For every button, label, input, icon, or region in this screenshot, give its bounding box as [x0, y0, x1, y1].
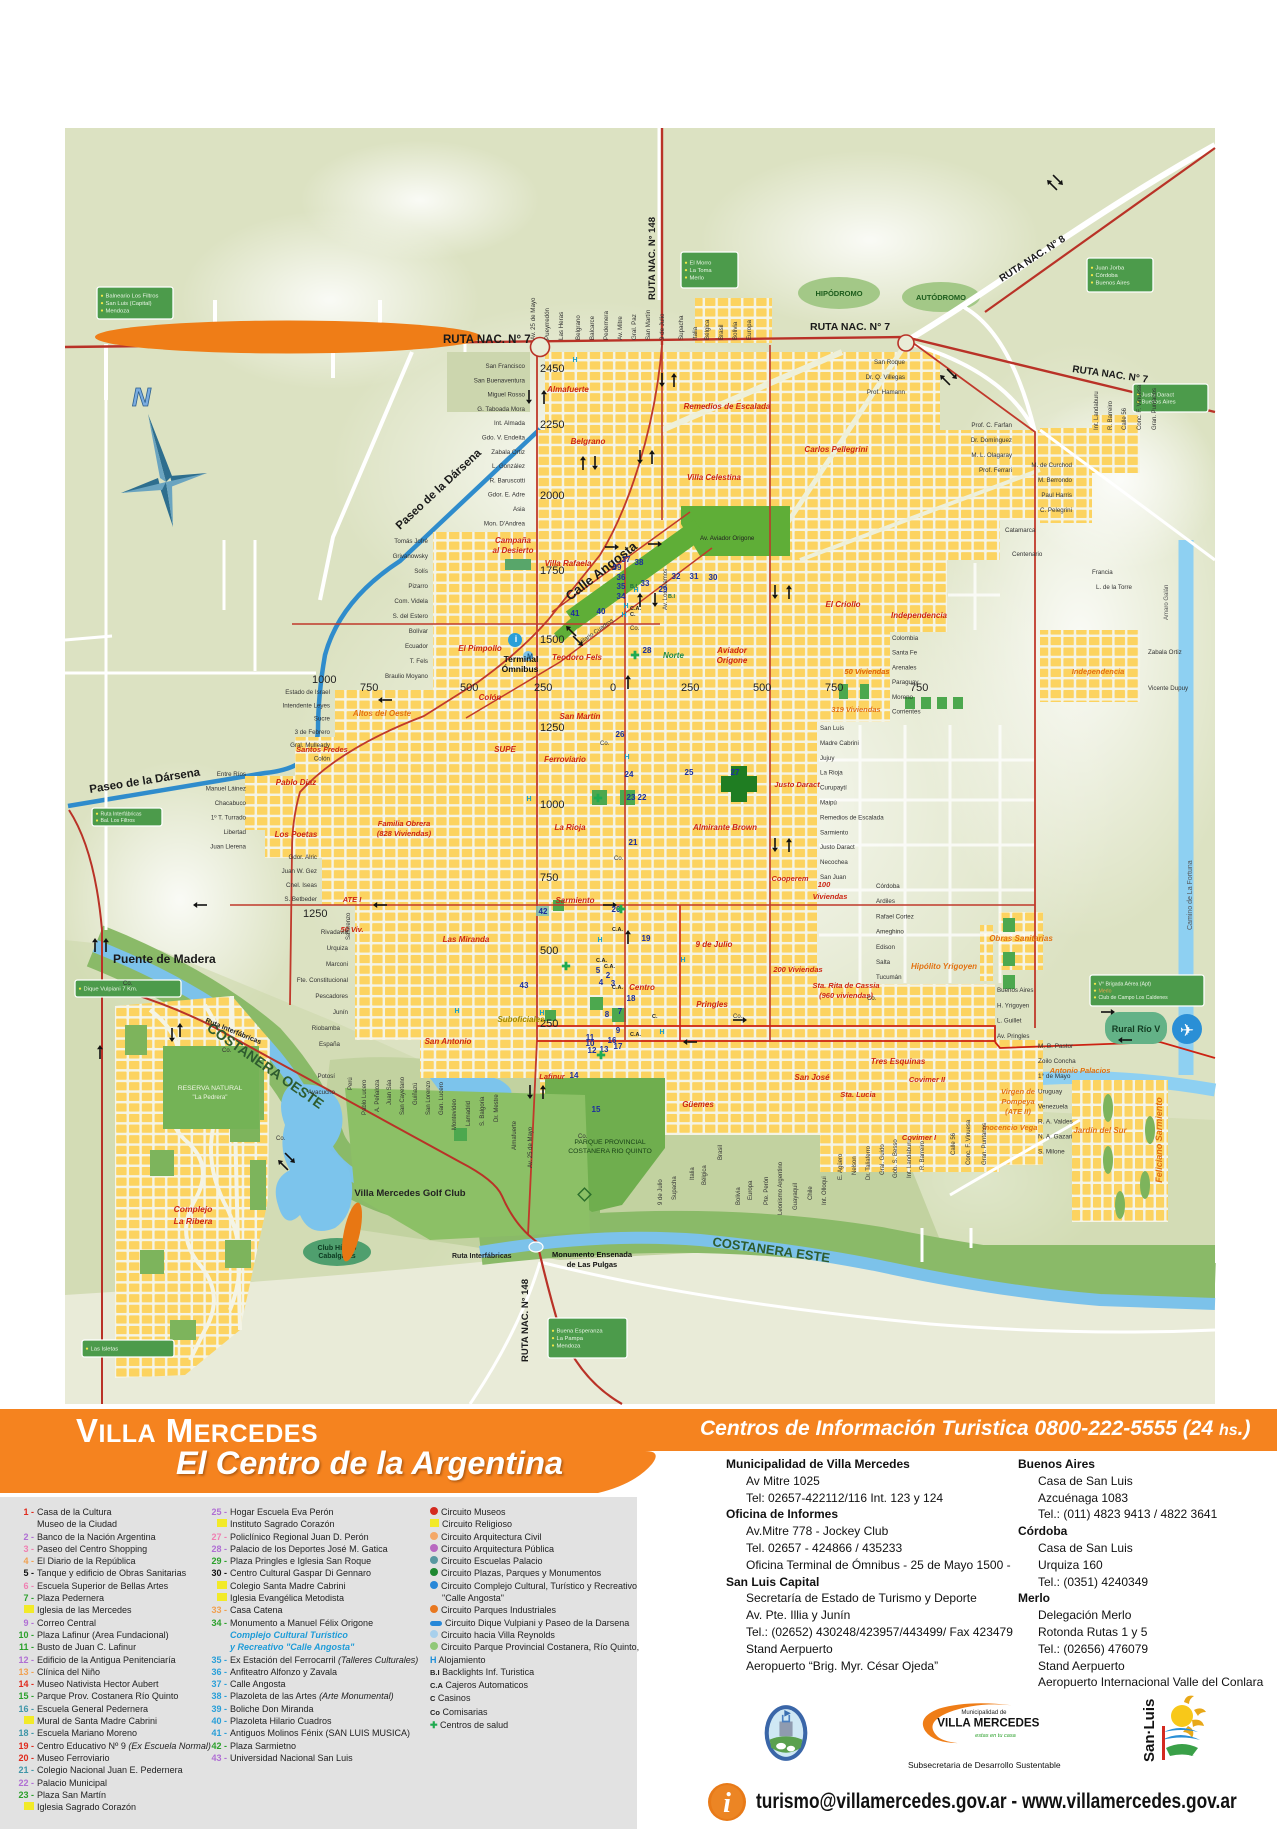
svg-text:Entre Ríos: Entre Ríos: [217, 771, 246, 778]
svg-text:N. A. Gazari: N. A. Gazari: [1038, 1134, 1072, 1141]
svg-text:Puente de Madera: Puente de Madera: [113, 952, 216, 966]
svg-text:Nelson: Nelson: [852, 1156, 858, 1175]
svg-text:San Buenaventura: San Buenaventura: [474, 377, 526, 384]
svg-text:Brasil: Brasil: [718, 1145, 724, 1160]
svg-text:Madre Cabrini: Madre Cabrini: [820, 740, 859, 747]
svg-text:750: 750: [360, 682, 378, 694]
svg-text:Dr. Domínguez: Dr. Domínguez: [971, 437, 1012, 444]
svg-text:Las Isletas: Las Isletas: [91, 1347, 119, 1353]
svg-text:Los Poetas: Los Poetas: [275, 830, 318, 839]
svg-text:Chacabuco: Chacabuco: [215, 800, 247, 807]
svg-text:Campaña: Campaña: [495, 536, 532, 545]
svg-text:Cnel. Iseas: Cnel. Iseas: [286, 882, 317, 889]
svg-text:Supacha: Supacha: [672, 1176, 678, 1200]
svg-text:Ameghino: Ameghino: [876, 929, 904, 936]
svg-text:Manuel Láinez: Manuel Láinez: [206, 786, 246, 793]
svg-text:Aviador: Aviador: [716, 646, 748, 655]
svg-text:Saforenzo: Saforenzo: [346, 912, 352, 940]
svg-text:4: 4: [599, 978, 604, 987]
svg-text:Lafinur: Lafinur: [539, 1072, 565, 1081]
svg-text:26: 26: [616, 730, 625, 739]
svg-text:Mendoza: Mendoza: [557, 1343, 582, 1349]
svg-text:Centenario: Centenario: [1012, 551, 1043, 558]
svg-text:HIPÓDROMO: HIPÓDROMO: [815, 289, 862, 298]
svg-text:Prof. C. Farfan: Prof. C. Farfan: [971, 422, 1012, 429]
svg-text:Moreno: Moreno: [892, 694, 914, 701]
svg-text:Pizarro: Pizarro: [408, 583, 428, 590]
svg-text:Remedios de Escalada: Remedios de Escalada: [820, 814, 884, 821]
svg-text:Int. Landaburu: Int. Landaburu: [907, 1139, 913, 1178]
svg-text:C.A.: C.A.: [630, 1032, 641, 1038]
svg-text:21: 21: [629, 838, 638, 847]
svg-text:N: N: [132, 382, 152, 412]
svg-text:Estado de Israel: Estado de Israel: [285, 689, 330, 696]
svg-text:Inocencio Vega: Inocencio Vega: [983, 1123, 1038, 1132]
svg-text:Edison: Edison: [876, 944, 895, 951]
svg-text:Maipú: Maipú: [820, 800, 837, 807]
svg-text:✈: ✈: [1180, 1021, 1194, 1040]
svg-text:San Francisco: San Francisco: [485, 363, 525, 370]
svg-text:Pueyrredón: Pueyrredón: [544, 307, 551, 340]
svg-text:Riobamba: Riobamba: [312, 1025, 341, 1032]
svg-text:L. de la Torre: L. de la Torre: [1096, 584, 1133, 591]
svg-text:C.: C.: [652, 1014, 658, 1020]
svg-text:S. Betbeder: S. Betbeder: [284, 896, 317, 903]
svg-text:Av. 25 de Mayo: Av. 25 de Mayo: [528, 1126, 534, 1168]
svg-text:(ATE II): (ATE II): [1005, 1107, 1031, 1116]
svg-text:San Luis (Capital): San Luis (Capital): [106, 301, 152, 307]
svg-text:Mon. D'Andrea: Mon. D'Andrea: [484, 520, 526, 527]
svg-text:1250: 1250: [303, 908, 327, 920]
svg-text:RUTA NAC. N° 148: RUTA NAC. N° 148: [520, 1279, 531, 1362]
svg-text:Almafuerte: Almafuerte: [546, 385, 589, 394]
svg-text:31: 31: [690, 572, 699, 581]
svg-text:Bélgica: Bélgica: [704, 319, 711, 340]
svg-text:17: 17: [614, 1042, 623, 1051]
svg-text:36: 36: [617, 573, 626, 582]
svg-text:Norte: Norte: [663, 651, 684, 660]
svg-text:San Antonio: San Antonio: [425, 1037, 472, 1046]
svg-text:"La Pedrera": "La Pedrera": [192, 1094, 227, 1101]
svg-text:Sucre: Sucre: [314, 716, 331, 723]
svg-text:50 Viviendas: 50 Viviendas: [844, 667, 889, 676]
svg-text:Gdor. E. Adre: Gdor. E. Adre: [488, 492, 526, 499]
svg-text:Av. Mitre: Av. Mitre: [617, 316, 624, 340]
svg-text:2450: 2450: [540, 363, 564, 375]
svg-text:Perú: Perú: [348, 1077, 354, 1090]
svg-text:Sta. Lucia: Sta. Lucia: [840, 1090, 875, 1099]
svg-text:Almirante Brown: Almirante Brown: [692, 823, 757, 832]
svg-text:Pompeya: Pompeya: [1001, 1097, 1034, 1106]
svg-text:Necochea: Necochea: [820, 859, 848, 866]
svg-text:Terminal: Terminal: [504, 654, 539, 664]
svg-text:Ruta Interfábricas: Ruta Interfábricas: [101, 811, 142, 817]
svg-text:Leonismo Argentino: Leonismo Argentino: [778, 1161, 784, 1215]
svg-text:L. Guillet: L. Guillet: [997, 1018, 1022, 1025]
svg-text:Conc. F. Vinuesa: Conc. F. Vinuesa: [966, 1119, 972, 1165]
svg-text:Grivanowsky: Grivanowsky: [393, 553, 429, 560]
svg-text:Villa Mercedes Golf Club: Villa Mercedes Golf Club: [354, 1188, 465, 1199]
svg-text:Güemes: Güemes: [682, 1100, 714, 1109]
svg-text:12: 12: [588, 1046, 597, 1055]
svg-text:Belgrano: Belgrano: [571, 437, 606, 446]
svg-text:Gdor. Alric: Gdor. Alric: [288, 854, 317, 861]
svg-text:1º T. Turrado: 1º T. Turrado: [211, 815, 247, 822]
svg-text:37: 37: [622, 555, 631, 564]
svg-text:Rivadavia: Rivadavia: [321, 929, 349, 936]
svg-text:1000: 1000: [540, 799, 564, 811]
svg-text:Paul Harris: Paul Harris: [1041, 492, 1072, 499]
svg-text:A. Peñaloza: A. Peñaloza: [375, 1079, 381, 1112]
svg-text:33: 33: [641, 579, 650, 588]
svg-text:Junín: Junín: [333, 1009, 349, 1016]
svg-text:Villa Celestina: Villa Celestina: [687, 473, 742, 482]
svg-text:Bolívar: Bolívar: [409, 628, 428, 635]
svg-text:H: H: [623, 603, 628, 610]
svg-text:Braulio Moyano: Braulio Moyano: [385, 673, 429, 680]
svg-text:Jujuy: Jujuy: [820, 755, 835, 762]
svg-text:C.A.: C.A.: [612, 985, 623, 991]
svg-text:Guayaquil: Guayaquil: [793, 1183, 799, 1210]
svg-text:9 de Julio: 9 de Julio: [658, 1179, 664, 1205]
svg-text:R. Barreiro: R. Barreiro: [1108, 400, 1114, 430]
svg-text:SUPE: SUPE: [494, 745, 516, 754]
svg-text:S. Balgoria: S. Balgoria: [480, 1096, 486, 1126]
svg-text:Arenales: Arenales: [892, 664, 916, 671]
svg-text:Buena Esperanza: Buena Esperanza: [557, 1329, 604, 1335]
svg-text:San Martín: San Martín: [560, 712, 601, 721]
svg-text:100: 100: [818, 880, 831, 889]
svg-text:Colón: Colón: [314, 756, 331, 763]
svg-text:Intendente Leyes: Intendente Leyes: [283, 702, 330, 709]
svg-text:M. L. Olagaray: M. L. Olagaray: [971, 452, 1012, 459]
svg-text:Pringles: Pringles: [696, 1000, 728, 1009]
svg-text:B.I: B.I: [668, 594, 676, 600]
svg-text:Europa: Europa: [746, 319, 753, 340]
svg-text:H: H: [624, 754, 629, 761]
svg-text:San Martín: San Martín: [645, 309, 652, 340]
svg-text:Urquiza: Urquiza: [327, 945, 349, 952]
svg-text:250: 250: [681, 682, 699, 694]
svg-text:Juan Llerena: Juan Llerena: [210, 844, 246, 851]
svg-text:Italia: Italia: [692, 326, 699, 340]
svg-text:Co.: Co.: [630, 626, 640, 632]
svg-text:2250: 2250: [540, 419, 564, 431]
svg-text:Curupaytí: Curupaytí: [820, 785, 847, 792]
svg-text:H: H: [597, 937, 602, 944]
svg-text:22: 22: [638, 793, 647, 802]
svg-text:29: 29: [659, 585, 668, 594]
svg-text:200 Viviendas: 200 Viviendas: [772, 965, 822, 974]
svg-text:Belgrano: Belgrano: [575, 315, 582, 340]
svg-text:Int. Almada: Int. Almada: [494, 420, 526, 427]
svg-text:R. A. Valdes: R. A. Valdes: [1038, 1119, 1073, 1126]
svg-text:Rafael Cortez: Rafael Cortez: [876, 913, 914, 920]
svg-text:39: 39: [613, 563, 622, 572]
svg-text:San Cayetano: San Cayetano: [400, 1076, 406, 1115]
svg-text:H: H: [659, 1029, 664, 1036]
svg-text:C.A.: C.A.: [604, 964, 615, 970]
svg-text:15: 15: [592, 1105, 601, 1114]
svg-text:Hipólito Yrigoyen: Hipólito Yrigoyen: [911, 962, 977, 971]
svg-text:Origone: Origone: [717, 656, 748, 665]
svg-text:ATE I: ATE I: [342, 895, 363, 904]
svg-text:Bolivia: Bolivia: [732, 321, 739, 340]
svg-text:Obras Sanitarias: Obras Sanitarias: [989, 934, 1053, 943]
svg-text:Balneario Los Filtros: Balneario Los Filtros: [106, 294, 159, 300]
svg-text:9: 9: [616, 1026, 621, 1035]
svg-text:Solís: Solís: [414, 568, 428, 575]
svg-text:Salta: Salta: [876, 959, 891, 966]
svg-text:M. Berrondo: M. Berrondo: [1038, 477, 1073, 484]
svg-text:Buenos Aires: Buenos Aires: [1142, 400, 1176, 406]
svg-text:Co.: Co.: [123, 981, 133, 987]
svg-text:Centro: Centro: [629, 983, 655, 992]
svg-text:500: 500: [540, 945, 558, 957]
svg-text:Club de Campo Los Caldenes: Club de Campo Los Caldenes: [1099, 995, 1169, 1001]
svg-text:Teodoro Fels: Teodoro Fels: [552, 653, 602, 662]
svg-text:C.: C.: [630, 612, 636, 618]
svg-text:18: 18: [627, 994, 636, 1003]
svg-text:El Pimpollo: El Pimpollo: [458, 644, 502, 653]
svg-text:500: 500: [753, 682, 771, 694]
svg-text:Gob. S. Besso: Gob. S. Besso: [893, 1139, 899, 1178]
svg-text:Tres Esquinas: Tres Esquinas: [871, 1057, 926, 1066]
svg-text:Venezuela: Venezuela: [1038, 1103, 1068, 1110]
svg-text:Europa: Europa: [748, 1180, 754, 1200]
svg-text:Brasil: Brasil: [718, 325, 725, 340]
svg-text:R. Baruscotti: R. Baruscotti: [490, 477, 525, 484]
svg-text:Covimer II: Covimer II: [909, 1075, 946, 1084]
svg-text:Int. Landaburu: Int. Landaburu: [1094, 391, 1100, 430]
svg-text:H: H: [526, 796, 531, 803]
svg-text:Justo Daract: Justo Daract: [774, 780, 820, 789]
svg-text:Justo Daract: Justo Daract: [820, 844, 855, 851]
svg-text:H: H: [454, 1008, 459, 1015]
svg-text:La Ribera: La Ribera: [174, 1216, 213, 1226]
svg-text:23: 23: [627, 793, 636, 802]
svg-text:Almafuerte: Almafuerte: [512, 1120, 518, 1150]
svg-text:Com. Videla: Com. Videla: [394, 598, 428, 605]
svg-text:Zabala Ortiz: Zabala Ortiz: [491, 449, 525, 456]
svg-text:Vicente Dupuy: Vicente Dupuy: [1148, 685, 1189, 692]
svg-text:25: 25: [685, 768, 694, 777]
svg-text:Conc. F. Vinuesa: Conc. F. Vinuesa: [1137, 384, 1143, 430]
svg-text:San·Luis: San·Luis: [1141, 1699, 1158, 1762]
svg-text:Prof. Ferrari: Prof. Ferrari: [979, 467, 1012, 474]
svg-text:La Rioja: La Rioja: [554, 823, 586, 832]
svg-text:San Roque: San Roque: [874, 359, 906, 366]
svg-text:Remedios de Escalada: Remedios de Escalada: [684, 402, 771, 411]
svg-text:(960 viviendas): (960 viviendas): [819, 991, 873, 1000]
svg-text:9 de Julio: 9 de Julio: [659, 313, 666, 340]
svg-text:S. del Estero: S. del Estero: [393, 613, 429, 620]
svg-text:Gran. Puntanos: Gran. Puntanos: [982, 1123, 988, 1165]
svg-text:Colón: Colón: [479, 693, 502, 702]
svg-text:Balcarce: Balcarce: [589, 315, 596, 340]
svg-text:319 Viviendas: 319 Viviendas: [831, 705, 880, 714]
svg-text:Merlo: Merlo: [1099, 988, 1112, 994]
svg-text:1250: 1250: [540, 722, 564, 734]
svg-text:de Las Pulgas: de Las Pulgas: [567, 1260, 617, 1269]
svg-text:RESERVA NATURAL: RESERVA NATURAL: [178, 1085, 243, 1092]
svg-text:Ferroviario: Ferroviario: [544, 755, 586, 764]
svg-text:14: 14: [570, 1071, 579, 1080]
svg-text:RUTA NAC. N° 148: RUTA NAC. N° 148: [647, 217, 658, 300]
svg-text:1000: 1000: [312, 674, 336, 686]
svg-text:Italia: Italia: [690, 1167, 696, 1180]
svg-text:E. Agüero: E. Agüero: [838, 1153, 844, 1180]
svg-text:43: 43: [520, 981, 529, 990]
svg-text:Buenos Aires: Buenos Aires: [1096, 280, 1130, 286]
svg-text:750: 750: [540, 872, 558, 884]
svg-text:Merlo: Merlo: [690, 275, 705, 281]
svg-text:Co.: Co.: [600, 741, 610, 747]
svg-text:7: 7: [618, 1007, 623, 1016]
svg-text:Guiñazú: Guiñazú: [413, 1083, 419, 1105]
svg-text:Av. 25 de Mayo: Av. 25 de Mayo: [530, 297, 537, 340]
svg-text:H. Yrigoyen: H. Yrigoyen: [997, 1002, 1030, 1009]
svg-text:Sarmiento: Sarmiento: [820, 829, 849, 836]
svg-text:24: 24: [625, 770, 634, 779]
svg-text:Buenos Aires: Buenos Aires: [997, 987, 1033, 994]
svg-text:5: 5: [596, 966, 601, 975]
svg-text:Altos del Oeste: Altos del Oeste: [352, 709, 412, 718]
svg-text:2000: 2000: [540, 490, 564, 502]
svg-text:Amaro Galán: Amaro Galán: [1164, 585, 1170, 620]
svg-text:41: 41: [571, 609, 580, 618]
svg-text:Calle 56: Calle 56: [951, 1132, 957, 1155]
svg-text:Bélgica: Bélgica: [702, 1165, 708, 1185]
svg-text:19: 19: [642, 934, 651, 943]
svg-text:8: 8: [605, 1010, 610, 1019]
svg-text:Independencia: Independencia: [891, 611, 948, 620]
svg-text:Zabala Ortiz: Zabala Ortiz: [1148, 649, 1182, 656]
svg-text:Las Miranda: Las Miranda: [443, 935, 490, 944]
svg-text:Sarmiento: Sarmiento: [555, 896, 594, 905]
svg-text:La Rioja: La Rioja: [820, 770, 843, 777]
svg-text:Juan Jorba: Juan Jorba: [1096, 266, 1125, 272]
svg-text:Co.: Co.: [578, 1134, 588, 1140]
svg-text:RUTA NAC. N° 7: RUTA NAC. N° 7: [443, 334, 531, 346]
svg-text:500: 500: [460, 682, 478, 694]
svg-text:H: H: [621, 612, 626, 619]
svg-text:C. Pelegrini: C. Pelegrini: [1040, 507, 1072, 514]
svg-text:Tomás Jofré: Tomás Jofré: [394, 538, 428, 545]
svg-text:H: H: [680, 957, 685, 964]
svg-text:Ruta Interfábricas: Ruta Interfábricas: [452, 1253, 512, 1260]
svg-text:estas en tu casa: estas en tu casa: [975, 1733, 1016, 1739]
svg-text:Supacha: Supacha: [678, 315, 685, 340]
svg-text:Montevideo: Montevideo: [452, 1098, 458, 1130]
svg-text:El Morro: El Morro: [690, 261, 712, 267]
svg-text:Rural Río V: Rural Río V: [1112, 1024, 1161, 1034]
svg-text:Sta. Rita de Cassia: Sta. Rita de Cassia: [812, 981, 879, 990]
svg-text:Gran. Puntanos: Gran. Puntanos: [1152, 388, 1158, 430]
svg-text:Co.: Co.: [276, 1136, 286, 1142]
svg-text:9 de Julio: 9 de Julio: [696, 940, 733, 949]
svg-text:3 de Febrero: 3 de Febrero: [295, 729, 331, 736]
svg-text:Bolivia: Bolivia: [736, 1187, 742, 1205]
svg-text:27: 27: [731, 768, 740, 777]
svg-text:PARQUE PROVINCIAL: PARQUE PROVINCIAL: [574, 1139, 645, 1146]
svg-text:Virgen de: Virgen de: [1001, 1087, 1035, 1096]
svg-text:Ardiles: Ardiles: [876, 898, 895, 905]
svg-text:Carlos Pellegrini: Carlos Pellegrini: [804, 445, 868, 454]
svg-text:Monumento Ensenada: Monumento Ensenada: [552, 1250, 633, 1259]
svg-text:Jardín del Sur: Jardín del Sur: [1073, 1126, 1127, 1135]
svg-text:Feliciano Sarmiento: Feliciano Sarmiento: [1154, 1097, 1164, 1183]
svg-text:Dique Vulpiani 7 Km.: Dique Vulpiani 7 Km.: [84, 987, 138, 993]
svg-text:Camino de La Fortuna: Camino de La Fortuna: [1187, 860, 1194, 930]
svg-text:C.A.: C.A.: [612, 927, 623, 933]
svg-text:H: H: [539, 1010, 544, 1017]
svg-text:VILLA MERCEDES: VILLA MERCEDES: [937, 1717, 1039, 1730]
svg-text:España: España: [319, 1041, 341, 1048]
svg-text:Int. Olloqui: Int. Olloqui: [822, 1176, 828, 1205]
svg-text:Gdo. V. Endeita: Gdo. V. Endeita: [482, 435, 526, 442]
svg-text:Co.: Co.: [733, 1014, 743, 1020]
svg-text:Chile: Chile: [808, 1186, 814, 1200]
svg-text:30: 30: [709, 573, 718, 582]
svg-text:Independencia: Independencia: [1072, 667, 1125, 676]
svg-text:Pablo Lucero: Pablo Lucero: [362, 1079, 368, 1115]
svg-text:Suboficiales: Suboficiales: [497, 1015, 545, 1024]
svg-text:Mendoza: Mendoza: [106, 308, 131, 314]
svg-text:Gan. Lucero: Gan. Lucero: [439, 1081, 445, 1115]
svg-text:Dr. Mestre: Dr. Mestre: [494, 1094, 500, 1122]
svg-text:Pedernera: Pedernera: [603, 311, 610, 340]
svg-text:42: 42: [539, 907, 548, 916]
svg-text:San Lorenzo: San Lorenzo: [426, 1080, 432, 1115]
svg-text:V° Brigada Aérea (Apt): V° Brigada Aérea (Apt): [1099, 982, 1152, 988]
svg-text:(828 Viviendas): (828 Viviendas): [377, 829, 432, 838]
svg-text:Dr. Q. Villegas: Dr. Q. Villegas: [866, 374, 905, 381]
svg-text:Marconi: Marconi: [326, 961, 348, 968]
svg-text:Potosí: Potosí: [317, 1073, 335, 1080]
svg-text:Catamarca: Catamarca: [1005, 527, 1036, 534]
svg-text:M. B. Pastor: M. B. Pastor: [1038, 1043, 1074, 1050]
svg-text:H: H: [572, 357, 577, 364]
svg-text:Gral. Mulleady: Gral. Mulleady: [290, 742, 331, 749]
svg-text:Libertad: Libertad: [224, 829, 247, 836]
svg-text:Prof. Hamann: Prof. Hamann: [867, 389, 906, 396]
svg-text:AUTÓDROMO: AUTÓDROMO: [916, 293, 966, 302]
svg-text:28: 28: [643, 646, 652, 655]
svg-text:Co.: Co.: [867, 996, 877, 1002]
svg-text:Bal. Los Filtros: Bal. Los Filtros: [101, 818, 136, 824]
svg-text:Pablo Diaz: Pablo Diaz: [276, 778, 316, 787]
svg-text:M. de Curchod: M. de Curchod: [1031, 462, 1072, 469]
svg-text:Juan W. Gez: Juan W. Gez: [282, 868, 317, 875]
svg-text:San Luis: San Luis: [820, 725, 844, 732]
svg-text:al Desierto: al Desierto: [493, 546, 534, 555]
svg-text:Av. Aviador Origone: Av. Aviador Origone: [700, 535, 755, 542]
svg-text:Pte. Perón: Pte. Perón: [764, 1177, 770, 1205]
svg-text:Santa Fe: Santa Fe: [892, 650, 918, 657]
svg-text:Co.: Co.: [614, 856, 624, 862]
svg-text:Tucumán: Tucumán: [876, 974, 902, 981]
svg-text:Córdoba: Córdoba: [876, 883, 900, 890]
svg-text:750: 750: [825, 682, 843, 694]
svg-text:Municipalidad de: Municipalidad de: [961, 1710, 1007, 1716]
svg-text:Dr. Taliaferro: Dr. Taliaferro: [866, 1145, 872, 1180]
svg-text:i: i: [515, 634, 518, 644]
svg-text:Miguel Rosso: Miguel Rosso: [488, 392, 526, 399]
svg-text:1° de Mayo: 1° de Mayo: [1038, 1072, 1071, 1080]
svg-text:G. Taboada Mora: G. Taboada Mora: [477, 406, 525, 413]
svg-text:Las Heras: Las Heras: [558, 312, 565, 340]
